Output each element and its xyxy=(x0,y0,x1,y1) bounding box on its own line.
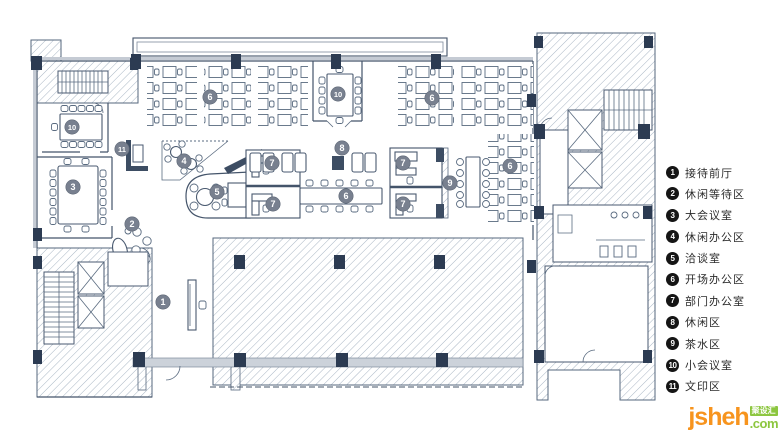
large-conference-room xyxy=(37,157,112,238)
watermark-logo: jsheh 聚设汇 .com xyxy=(688,405,778,430)
legend-number-badge: 10 xyxy=(666,359,679,372)
legend-item-4: 4休闲办公区 xyxy=(666,230,745,243)
legend-label: 洽谈室 xyxy=(685,250,721,266)
svg-text:10: 10 xyxy=(68,123,76,132)
print-area xyxy=(126,140,148,171)
legend-number-badge: 2 xyxy=(666,187,679,200)
plan-marker-6c: 6 xyxy=(339,189,353,203)
legend-number-badge: 11 xyxy=(666,380,679,393)
svg-text:10: 10 xyxy=(334,90,342,99)
legend-number-badge: 5 xyxy=(666,252,679,265)
svg-text:11: 11 xyxy=(118,145,126,154)
plan-marker-5: 5 xyxy=(210,185,224,199)
legend-label: 小会议室 xyxy=(685,357,733,373)
legend-item-6: 6开场办公区 xyxy=(666,273,745,286)
svg-text:5: 5 xyxy=(214,187,219,197)
svg-text:1: 1 xyxy=(160,297,165,307)
legend-item-10: 10小会议室 xyxy=(666,359,745,372)
legend-number-badge: 3 xyxy=(666,209,679,222)
watermark-tld: .com xyxy=(750,417,778,430)
svg-text:7: 7 xyxy=(269,158,274,168)
legend-label: 休闲办公区 xyxy=(685,229,745,245)
legend-number-badge: 9 xyxy=(666,337,679,350)
svg-text:6: 6 xyxy=(507,161,512,171)
legend-label: 接待前厅 xyxy=(685,165,733,181)
svg-text:8: 8 xyxy=(339,143,344,153)
legend-label: 茶水区 xyxy=(685,336,721,352)
plan-marker-4: 4 xyxy=(177,154,191,168)
svg-text:2: 2 xyxy=(129,219,134,229)
legend-label: 开场办公区 xyxy=(685,271,745,287)
legend-item-11: 11文印区 xyxy=(666,380,745,393)
watermark-brand-text: jsheh xyxy=(688,405,748,430)
legend-item-5: 5洽谈室 xyxy=(666,252,745,265)
svg-text:6: 6 xyxy=(429,93,434,103)
plan-marker-7d: 7 xyxy=(396,197,410,211)
plan-marker-9: 9 xyxy=(443,176,457,190)
legend-label: 休闲等待区 xyxy=(685,186,745,202)
svg-text:6: 6 xyxy=(207,92,212,102)
svg-text:9: 9 xyxy=(447,178,452,188)
plan-marker-3: 3 xyxy=(66,180,80,194)
plan-marker-11: 11 xyxy=(115,142,129,156)
plan-marker-6a: 6 xyxy=(203,90,217,104)
legend-item-2: 2休闲等待区 xyxy=(666,187,745,200)
watermark-badge: 聚设汇 xyxy=(750,406,778,416)
legend-item-9: 9茶水区 xyxy=(666,337,745,350)
svg-text:4: 4 xyxy=(181,156,186,166)
legend-number-badge: 8 xyxy=(666,316,679,329)
legend-label: 部门办公室 xyxy=(685,293,745,309)
plan-marker-10a: 10 xyxy=(331,87,345,101)
legend-label: 休闲区 xyxy=(685,314,721,330)
tea-area xyxy=(457,157,490,208)
plan-marker-7b: 7 xyxy=(266,197,280,211)
canopy-outline xyxy=(133,38,447,56)
svg-text:7: 7 xyxy=(270,199,275,209)
plan-marker-8: 8 xyxy=(335,141,349,155)
legend-number-badge: 6 xyxy=(666,273,679,286)
plan-marker-1: 1 xyxy=(156,295,170,309)
legend-item-7: 7部门办公室 xyxy=(666,294,745,307)
legend-number-badge: 4 xyxy=(666,230,679,243)
svg-text:3: 3 xyxy=(70,182,75,192)
legend-item-8: 8休闲区 xyxy=(666,316,745,329)
plan-marker-6b: 6 xyxy=(425,91,439,105)
plan-marker-2: 2 xyxy=(125,217,139,231)
floorplan-page: 1 2 3 4 5 6 6 6 6 7 7 7 7 8 9 10 10 11 1… xyxy=(0,0,780,431)
legend-label: 文印区 xyxy=(685,378,721,394)
plan-marker-10b: 10 xyxy=(65,120,79,134)
svg-text:7: 7 xyxy=(400,158,405,168)
plan-marker-6d: 6 xyxy=(503,159,517,173)
legend: 1接待前厅 2休闲等待区 3大会议室 4休闲办公区 5洽谈室 6开场办公区 7部… xyxy=(666,166,745,393)
legend-number-badge: 1 xyxy=(666,166,679,179)
floor-plan: 1 2 3 4 5 6 6 6 6 7 7 7 7 8 9 10 10 11 xyxy=(0,0,780,431)
legend-label: 大会议室 xyxy=(685,207,733,223)
legend-number-badge: 7 xyxy=(666,294,679,307)
legend-item-1: 1接待前厅 xyxy=(666,166,745,179)
legend-item-3: 3大会议室 xyxy=(666,209,745,222)
plan-marker-7a: 7 xyxy=(265,156,279,170)
svg-text:6: 6 xyxy=(343,191,348,201)
plan-marker-7c: 7 xyxy=(396,156,410,170)
svg-text:7: 7 xyxy=(400,199,405,209)
